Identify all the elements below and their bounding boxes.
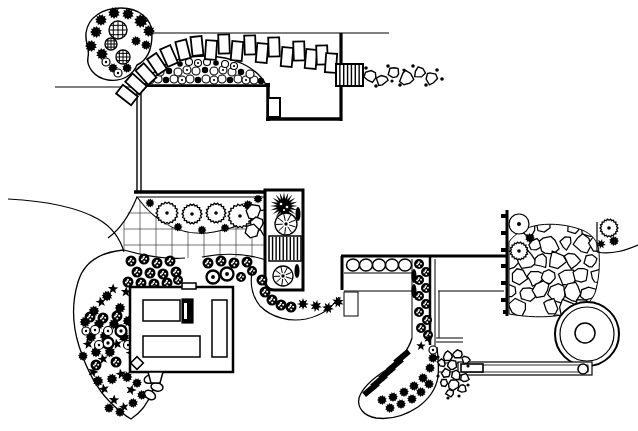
deck-grill (182, 299, 193, 323)
garden-bench-cap (578, 364, 588, 374)
deck-step-top (182, 283, 196, 289)
garden-bench (458, 362, 592, 375)
foot-bridge (336, 64, 363, 86)
entry-walk-steps (269, 236, 301, 261)
house-utility-box (268, 98, 280, 117)
deck-step-bottom (148, 372, 163, 383)
landscape-plan-sheet (0, 0, 638, 431)
spa (555, 302, 619, 366)
boulder-row (347, 259, 412, 271)
landscape-plan-drawing (0, 0, 638, 431)
